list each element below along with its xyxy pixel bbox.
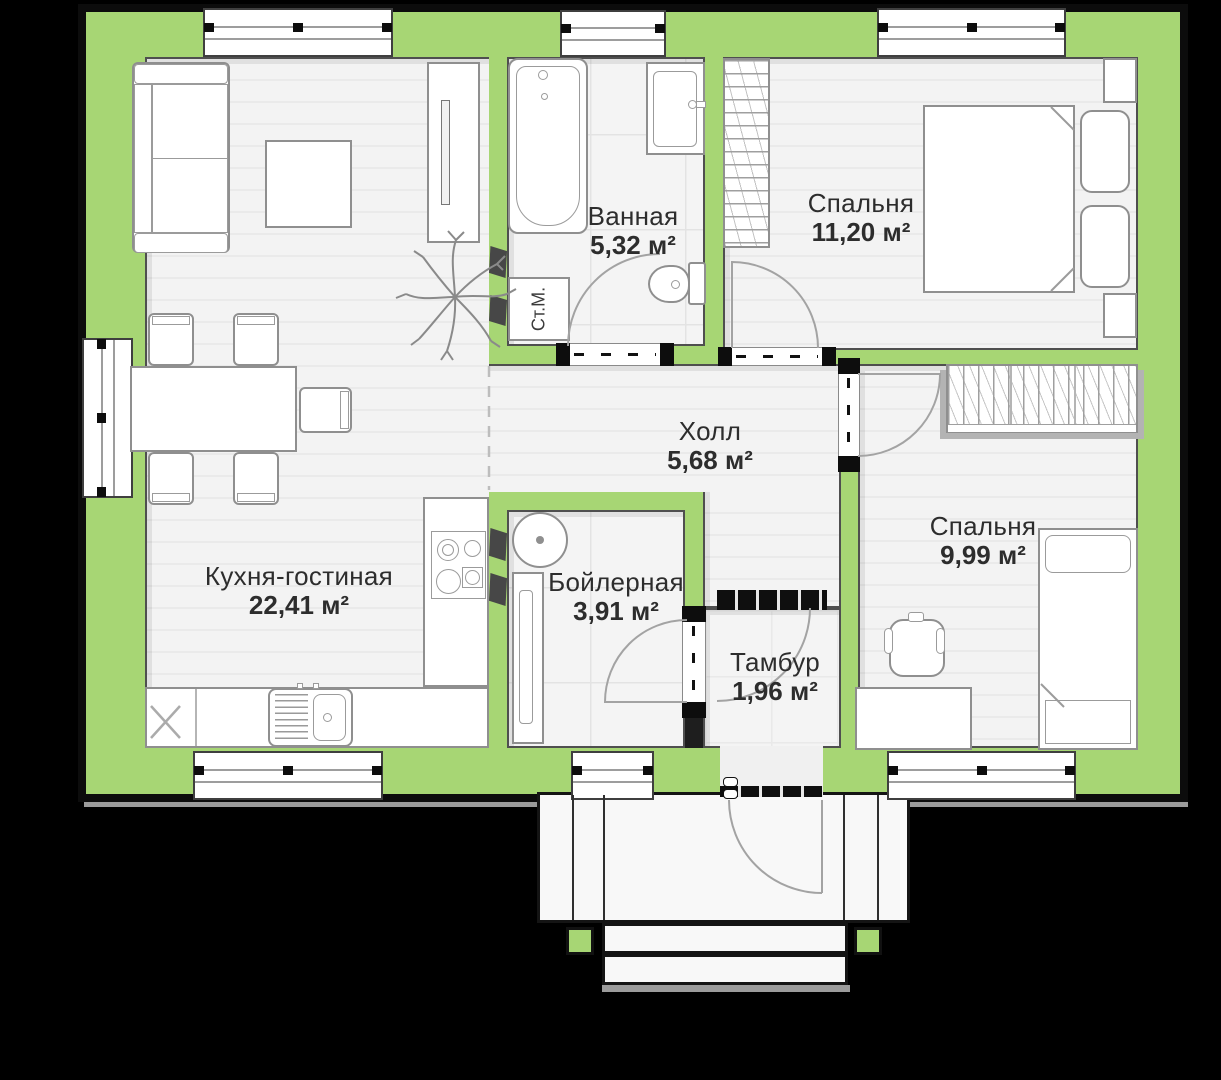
wall-cap <box>682 606 706 622</box>
steps-shadow <box>602 985 850 992</box>
desk <box>855 687 972 750</box>
drain-icon <box>541 93 548 100</box>
sink-drain-icon <box>323 713 332 722</box>
vestibule-inner-door <box>717 590 827 610</box>
burner-icon <box>465 570 480 585</box>
wall-vent-icon <box>489 295 507 326</box>
chair-armrest <box>936 628 945 654</box>
wall-segment-dark <box>685 718 703 748</box>
sink-drainboard <box>275 694 308 741</box>
porch-step-2 <box>602 954 848 985</box>
counter-divider <box>195 689 197 746</box>
wardrobe-bedroom-1 <box>723 58 770 248</box>
door-threshold-boiler <box>682 622 706 702</box>
window-top-bedroom-1 <box>877 8 1066 57</box>
faucet-icon <box>297 683 303 689</box>
porch-column-right <box>854 927 882 955</box>
sofa-armrest <box>134 64 228 84</box>
window-top-living <box>203 8 393 57</box>
blanket <box>1045 700 1131 744</box>
sofa-backrest <box>134 84 152 233</box>
door-threshold-bedroom-2 <box>838 374 860 456</box>
room-label-bedroom-1: Спальня 11,20 м² <box>808 190 915 246</box>
chair-backrest <box>152 316 190 325</box>
room-label-boiler: Бойлерная 3,91 м² <box>548 569 684 625</box>
faucet-icon <box>696 101 706 108</box>
porch-column-left <box>566 927 594 955</box>
floor-plan-page: { "plan": { "rooms": [ {"id": "bathroom"… <box>0 0 1221 1080</box>
porch-slab <box>537 792 910 923</box>
window-bottom-bedroom-2 <box>887 751 1076 800</box>
wardrobe-bedroom-2 <box>946 364 1138 433</box>
toilet <box>688 262 706 305</box>
wall-cap <box>682 702 706 718</box>
sofa-armrest <box>134 233 228 253</box>
wall-cap <box>838 456 860 472</box>
chair-armrest <box>884 628 893 654</box>
wall-cap <box>718 347 732 366</box>
door-handle-icon <box>723 789 738 799</box>
double-bed <box>923 105 1075 293</box>
room-label-bedroom-2: Спальня 9,99 м² <box>930 513 1037 569</box>
wardrobe-rail <box>948 424 1136 432</box>
wall-cap <box>660 343 674 366</box>
window-left-kitchen <box>82 338 133 498</box>
bathtub-basin <box>516 66 580 226</box>
wardrobe-divider <box>1010 366 1012 424</box>
room-label-hall: Холл 5,68 м² <box>667 418 753 474</box>
chair-backrest <box>152 493 190 502</box>
room-hall-main <box>489 364 841 492</box>
nightstand <box>1103 293 1137 338</box>
dining-table <box>130 366 297 452</box>
window-bottom-kitchen <box>193 751 383 800</box>
faucet-icon <box>538 70 548 80</box>
porch-step-1 <box>602 923 848 954</box>
heater-slot <box>519 590 533 724</box>
pillow <box>1080 110 1130 193</box>
sofa-cushion <box>152 158 228 233</box>
room-label-kitchen-living: Кухня-гостиная 22,41 м² <box>205 563 393 619</box>
pillow <box>1080 205 1130 288</box>
door-threshold-bathroom <box>570 343 660 366</box>
room-label-vestibule: Тамбур 1,96 м² <box>730 649 820 705</box>
chair-backrest <box>340 391 349 429</box>
chair-backrest <box>237 493 275 502</box>
wardrobe-divider <box>1074 366 1076 424</box>
burner-icon <box>442 544 454 556</box>
faucet-icon <box>313 683 319 689</box>
wall-vent-icon <box>489 528 507 561</box>
toilet-bowl <box>648 265 690 303</box>
burner-icon <box>436 569 461 594</box>
window-top-bathroom <box>560 10 666 57</box>
burner-icon <box>464 540 481 557</box>
toilet-button-icon <box>671 280 680 289</box>
coffee-table <box>265 140 352 228</box>
wall-vent-icon <box>489 246 507 278</box>
room-label-bathroom: Ванная 5,32 м² <box>588 203 679 259</box>
boiler-center-icon <box>536 536 544 544</box>
door-handle-icon <box>723 777 738 787</box>
wall-vent-icon <box>489 573 507 606</box>
wall-cap <box>556 343 570 366</box>
tv-stand <box>427 62 480 243</box>
chair-backrest <box>237 316 275 325</box>
nightstand <box>1103 58 1137 103</box>
chair-headrest <box>908 612 924 622</box>
sink-basin <box>653 71 697 147</box>
wall-cap <box>838 358 860 374</box>
door-threshold-bedroom-1 <box>732 347 822 366</box>
pillow <box>1045 535 1131 573</box>
sofa-cushion <box>152 84 228 159</box>
washing-machine-label: Ст.М. <box>529 287 550 331</box>
wall-cap <box>822 347 836 366</box>
window-bottom-boiler <box>571 751 654 800</box>
tv-icon <box>441 100 450 205</box>
